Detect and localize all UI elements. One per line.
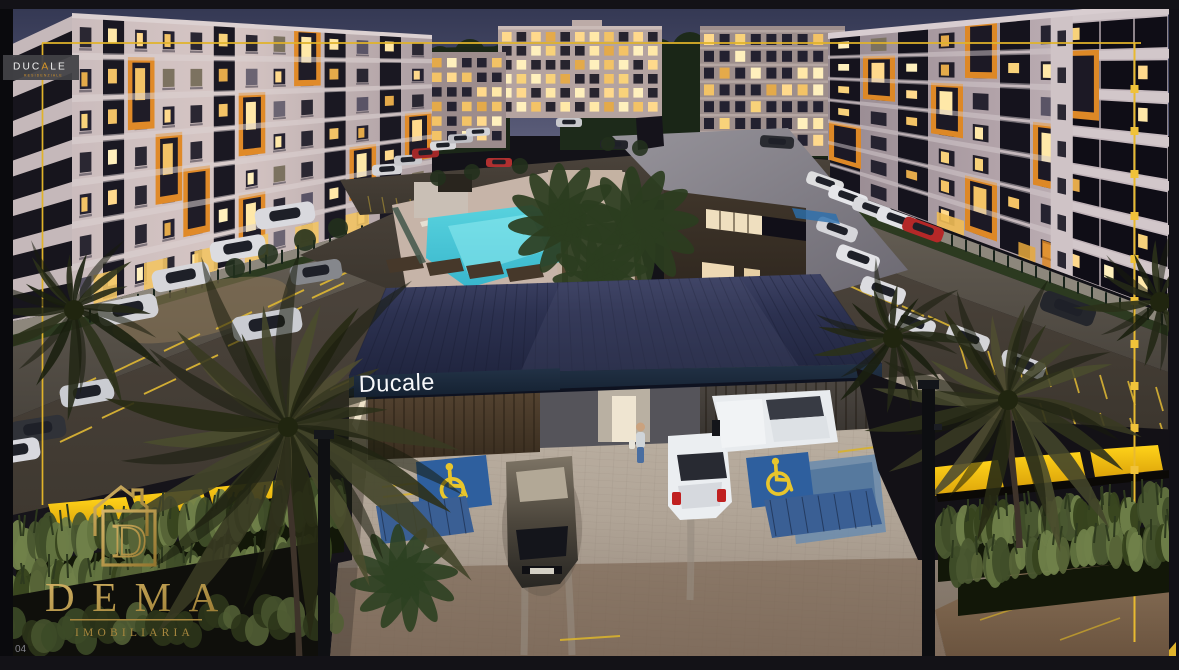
svg-text:04: 04 xyxy=(15,644,27,655)
svg-text:Ducale: Ducale xyxy=(358,369,435,397)
svg-text:DEMA: DEMA xyxy=(45,574,236,620)
svg-text:D: D xyxy=(112,515,147,568)
svg-text:DUCALE: DUCALE xyxy=(13,62,67,73)
svg-text:IMOBILIARIA: IMOBILIARIA xyxy=(75,627,194,639)
svg-text:RESIDENZIALE: RESIDENZIALE xyxy=(24,74,63,78)
